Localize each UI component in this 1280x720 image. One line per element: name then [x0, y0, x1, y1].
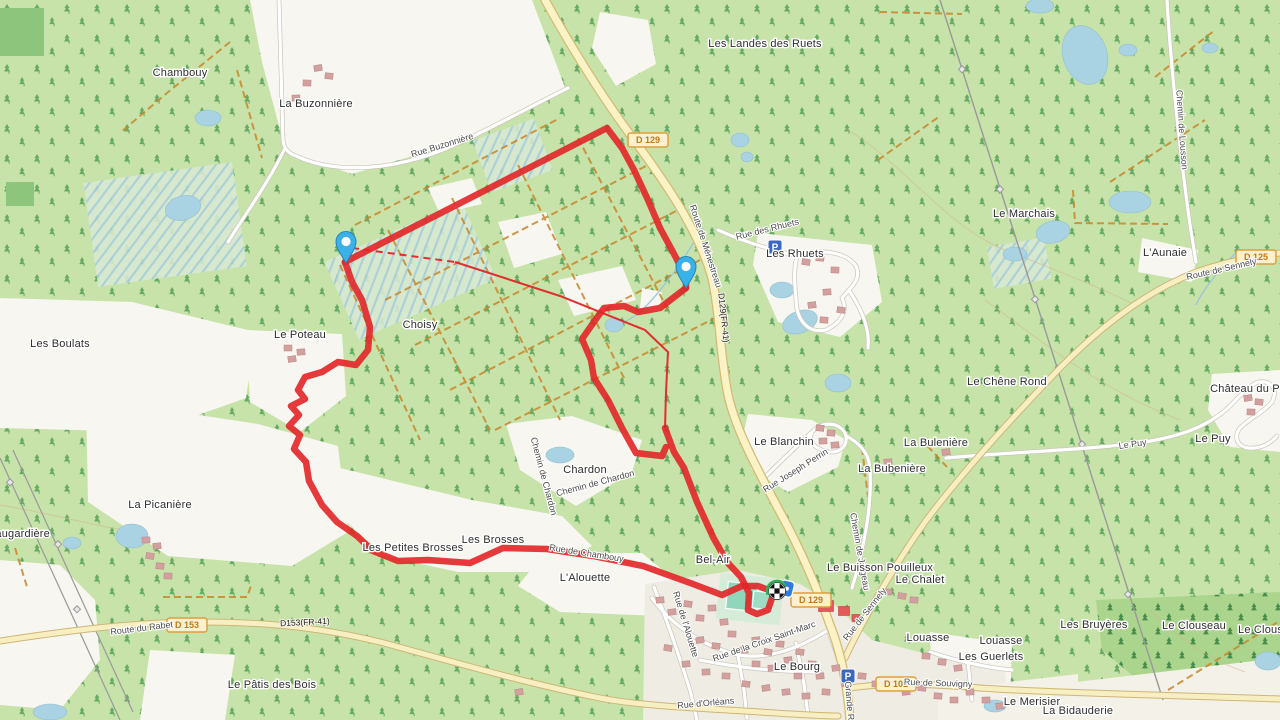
place-label: Le Buisson Pouilleux: [827, 562, 933, 574]
place-label: Le Chalet: [896, 574, 945, 586]
place-label: Le Pâtis des Bois: [228, 679, 317, 691]
building: [297, 349, 305, 356]
road-shield: D 129: [791, 593, 831, 607]
building: [515, 688, 524, 695]
map-viewport[interactable]: PPD 129D 129D 153D 101D 125 D153(FR-41)D…: [0, 0, 1280, 720]
building: [966, 689, 974, 696]
place-label: La Picanière: [128, 499, 192, 511]
building: [656, 597, 664, 604]
building: [764, 648, 773, 655]
building: [832, 664, 841, 671]
terrain-layer: [0, 0, 1280, 720]
building: [702, 669, 710, 675]
place-label: Les Brosses: [462, 534, 525, 546]
svg-text:D 153: D 153: [175, 620, 199, 630]
building: [858, 673, 866, 680]
building: [156, 563, 164, 570]
svg-text:D 129: D 129: [799, 595, 823, 605]
building: [950, 697, 958, 703]
building: [782, 689, 790, 696]
svg-text:D 129: D 129: [636, 135, 660, 145]
building: [831, 442, 839, 449]
building: [827, 430, 835, 436]
building: [303, 80, 311, 86]
building: [668, 608, 677, 615]
place-label: Maugardière: [0, 528, 50, 540]
building: [762, 684, 771, 691]
building: [831, 267, 839, 273]
building: [314, 64, 323, 71]
building: [752, 661, 760, 667]
building: [816, 673, 824, 680]
place-label: Les Rhuets: [766, 248, 824, 260]
place-label: Choisy: [403, 319, 438, 331]
place-label: Le Clouseau: [1162, 620, 1226, 632]
building: [728, 631, 736, 637]
building: [288, 355, 297, 362]
place-label: Bel-Air: [696, 554, 731, 566]
place-label: Chambouy: [153, 67, 208, 79]
place-label: L'Aunaie: [1143, 247, 1187, 259]
place-label: Le Chêne Rond: [967, 376, 1047, 388]
place-label: Chardon: [563, 464, 607, 476]
building: [164, 573, 172, 579]
building: [1244, 394, 1253, 401]
place-label: Louasse: [907, 632, 950, 644]
place-label: Louasse: [980, 635, 1023, 647]
building: [822, 689, 830, 695]
building: [146, 552, 155, 559]
building: [794, 673, 802, 679]
building: [954, 664, 963, 671]
building: [796, 648, 805, 655]
building: [816, 425, 825, 432]
building: [910, 597, 918, 604]
building: [898, 592, 907, 599]
building: [325, 73, 334, 80]
place-label: Le Marchais: [993, 208, 1055, 220]
building: [153, 543, 162, 550]
building: [922, 653, 930, 659]
place-label: Les Landes des Ruets: [708, 38, 822, 50]
place-label: La Bubenière: [858, 463, 926, 475]
building: [837, 306, 846, 313]
building: [808, 302, 817, 309]
building: [819, 438, 827, 444]
place-label: L'Alouette: [560, 572, 611, 584]
building: [820, 317, 828, 324]
place-label: Les Bruyères: [1060, 619, 1128, 631]
place-label: Château du Puy: [1210, 383, 1280, 395]
place-label: La Buzonnière: [279, 98, 353, 110]
map-canvas: PPD 129D 129D 153D 101D 125 D153(FR-41)D…: [0, 0, 1280, 720]
place-label: Le Clouseau: [1238, 624, 1280, 636]
building: [712, 643, 721, 650]
place-label: Les Petites Brosses: [362, 542, 463, 554]
building-highlighted: [839, 607, 850, 616]
building: [982, 697, 990, 703]
building: [742, 681, 751, 688]
place-label: La Bulenière: [904, 437, 968, 449]
place-label: La Bidauderie: [1043, 705, 1114, 717]
place-label: Les Boulats: [30, 338, 90, 350]
building: [284, 345, 292, 351]
building: [720, 619, 728, 626]
building: [802, 693, 810, 699]
place-label: Le Poteau: [274, 329, 326, 341]
building: [682, 661, 691, 668]
building: [823, 289, 831, 295]
place-label: Le Bourg: [774, 661, 820, 673]
building: [1247, 409, 1255, 415]
building: [664, 644, 673, 651]
place-label: Les Guerlets: [959, 651, 1024, 663]
building: [708, 605, 716, 611]
place-label: Le Blanchin: [754, 436, 814, 448]
building: [722, 673, 730, 679]
place-label: Le Puy: [1195, 433, 1231, 445]
building: [934, 693, 942, 700]
building: [142, 537, 150, 543]
building: [942, 449, 951, 456]
building: [1255, 399, 1264, 406]
building: [696, 615, 704, 621]
building: [938, 659, 947, 666]
road-shield: D 129: [628, 133, 668, 147]
